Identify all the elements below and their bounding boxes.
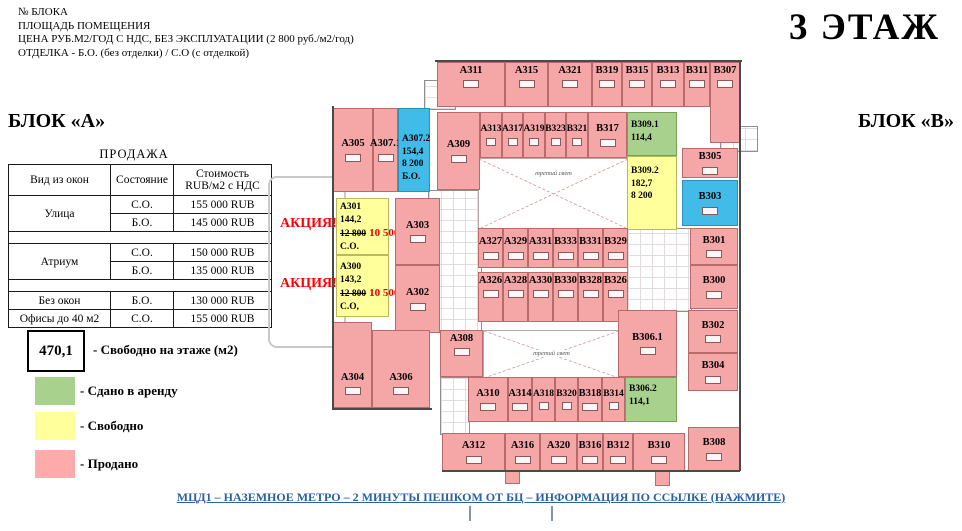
room-label: А312: [462, 440, 485, 452]
atrium-label: третий свет: [479, 170, 628, 177]
room-label: В305: [699, 151, 722, 163]
room-label: В317: [596, 123, 619, 135]
room-А330: А330: [528, 272, 553, 322]
room-info-line: 12 80010 500: [340, 226, 399, 241]
room-number-tag: [533, 290, 549, 298]
room-info-line: Б.О.: [402, 171, 420, 184]
room-А308: А308: [440, 330, 483, 377]
room-А309: А309: [437, 112, 480, 190]
room-info-line: А307.2: [402, 133, 430, 146]
room-label: А330: [529, 275, 552, 287]
service-core: [440, 377, 470, 435]
room-В321: В321: [566, 112, 588, 158]
room-info-line: 154,4: [402, 146, 423, 159]
room-label: А310: [476, 388, 499, 400]
room-info-line: 8 200: [631, 190, 652, 203]
plan-outer-wall: [442, 470, 740, 472]
room-label: В329: [604, 236, 627, 248]
room-info-line: В306.2: [629, 383, 657, 396]
room-number-tag: [583, 252, 599, 260]
room-label: А329: [504, 236, 527, 248]
room-label: В310: [648, 440, 671, 452]
room-label: В301: [703, 235, 726, 247]
room-number-tag: [483, 290, 499, 298]
room-number-tag: [582, 456, 598, 464]
room-label: В326: [604, 275, 627, 287]
room-В330: В330: [553, 272, 578, 322]
room-label: В307: [714, 65, 737, 77]
room-В316: В316: [577, 433, 603, 471]
room-number-tag: [600, 139, 616, 147]
room-info-line: 114,4: [631, 132, 652, 145]
room-label: В306.1: [632, 332, 663, 344]
room-label: В320: [556, 389, 577, 400]
room-number-tag: [533, 252, 549, 260]
room-info-line: 12 80010 500: [340, 286, 399, 301]
room-В313: В313: [652, 62, 684, 107]
room-label: В321: [567, 124, 588, 135]
room-В317: В317: [588, 112, 627, 158]
room-number-tag: [508, 290, 524, 298]
room-label: А313: [480, 124, 501, 135]
room-А302: А302: [395, 265, 440, 333]
stair-stub: [505, 470, 520, 484]
room-В319: В319: [592, 62, 622, 107]
room-number-tag: [483, 252, 499, 260]
room-number-tag: [582, 403, 598, 411]
room-number-tag: [689, 80, 705, 88]
room-info-line: 114,1: [629, 396, 650, 409]
rail-tick-right: [551, 506, 553, 521]
room-label: В302: [702, 320, 725, 332]
room-А320: А320: [540, 433, 577, 471]
room-А300: А300143,212 80010 500С.О,: [336, 255, 389, 317]
room-label: А331: [529, 236, 552, 248]
old-price: 12 800: [340, 229, 366, 239]
room-label: В300: [703, 275, 726, 287]
room-number-tag: [466, 456, 482, 464]
room-А307.1: А307.1: [373, 108, 398, 192]
room-number-tag: [410, 235, 426, 243]
room-number-tag: [609, 402, 619, 410]
room-А303: А303: [395, 198, 440, 265]
room-В301: В301: [690, 228, 738, 265]
room-В303: В303: [682, 180, 738, 226]
plan-outer-wall: [435, 60, 742, 62]
room-label: А318: [533, 389, 554, 400]
room-label: В312: [607, 440, 630, 452]
room-number-tag: [640, 347, 656, 355]
room-number-tag: [706, 291, 722, 299]
room-В329: В329: [603, 228, 628, 268]
room-number-tag: [345, 387, 361, 395]
room-А311: А311: [437, 62, 505, 107]
room-label: А311: [460, 65, 483, 77]
room-label: А305: [341, 138, 364, 150]
room-В300: В300: [690, 265, 738, 309]
promo-label: АКЦИЯ!: [280, 276, 337, 292]
room-label: А320: [547, 440, 570, 452]
room-info-line: 182,7: [631, 178, 652, 191]
room-label: А327: [479, 236, 502, 248]
room-label: А328: [504, 275, 527, 287]
room-info-line: 144,2: [340, 214, 361, 227]
room-number-tag: [551, 138, 561, 146]
room-label: В311: [686, 65, 708, 77]
room-label: А304: [341, 372, 364, 384]
room-В304: В304: [688, 353, 738, 391]
room-А307.2: А307.2154,48 200Б.О.: [398, 108, 430, 192]
room-label: А319: [523, 124, 544, 135]
floor-plan: третий светтретий светА311А315А321В319В3…: [0, 0, 962, 531]
room-number-tag: [519, 80, 535, 88]
room-label: В313: [657, 65, 680, 77]
room-number-tag: [705, 376, 721, 384]
room-number-tag: [608, 252, 624, 260]
room-info-line: В309.1: [631, 119, 659, 132]
room-info-line: А301: [340, 201, 361, 214]
room-number-tag: [451, 155, 467, 163]
room-info-line: С.О.: [340, 241, 359, 254]
room-number-tag: [529, 138, 539, 146]
room-number-tag: [463, 80, 479, 88]
room-В312: В312: [603, 433, 633, 471]
room-А319: А319: [523, 112, 545, 158]
room-В323: В323: [545, 112, 566, 158]
room-number-tag: [508, 138, 518, 146]
room-А316: А316: [505, 433, 540, 471]
room-number-tag: [486, 138, 496, 146]
room-А306: А306: [372, 330, 430, 408]
room-В314: В314: [602, 377, 625, 422]
room-number-tag: [515, 456, 531, 464]
metro-info-link[interactable]: МЦД1 – НАЗЕМНОЕ МЕТРО – 2 МИНУТЫ ПЕШКОМ …: [177, 490, 786, 504]
room-number-tag: [599, 80, 615, 88]
room-number-tag: [562, 402, 572, 410]
room-В307: В307: [710, 62, 740, 143]
room-label: А303: [406, 220, 429, 232]
room-number-tag: [610, 456, 626, 464]
room-В331: В331: [578, 228, 603, 268]
plan-outer-wall: [332, 106, 334, 409]
atrium-void: третий свет: [478, 158, 629, 230]
room-label: А307.1: [370, 138, 401, 150]
room-number-tag: [562, 80, 578, 88]
room-А314: А314: [508, 377, 532, 422]
atrium-label: третий свет: [484, 350, 619, 357]
room-number-tag: [378, 154, 394, 162]
room-number-tag: [706, 453, 722, 461]
room-А331: А331: [528, 228, 553, 268]
room-В333: В333: [553, 228, 578, 268]
page: № БЛОКАПЛОЩАДЬ ПОМЕЩЕНИЯЦЕНА РУБ.М2/ГОД …: [0, 0, 962, 531]
room-А313: А313: [480, 112, 502, 158]
room-number-tag: [706, 250, 722, 258]
room-А318: А318: [532, 377, 555, 422]
room-А321: А321: [548, 62, 592, 107]
room-label: А316: [511, 440, 534, 452]
old-price: 12 800: [340, 289, 366, 299]
room-info-line: 8 200: [402, 158, 423, 171]
service-core: [627, 228, 692, 312]
room-В306.2: В306.2114,1: [625, 377, 677, 422]
plan-outer-wall: [332, 408, 432, 410]
room-number-tag: [410, 303, 426, 311]
room-number-tag: [651, 456, 667, 464]
stair-stub: [655, 470, 670, 486]
room-А301: А301144,212 80010 500С.О.: [336, 198, 389, 255]
room-number-tag: [702, 167, 718, 175]
room-label: В318: [579, 388, 602, 400]
room-number-tag: [608, 290, 624, 298]
atrium-void: третий свет: [483, 330, 620, 379]
room-А310: А310: [468, 377, 508, 422]
room-В315: В315: [622, 62, 652, 107]
room-label: В323: [545, 124, 566, 135]
room-label: В330: [554, 275, 577, 287]
room-label: В331: [579, 236, 602, 248]
room-label: В315: [626, 65, 649, 77]
room-label: А326: [479, 275, 502, 287]
plan-outer-wall: [739, 62, 741, 471]
room-В306.1: В306.1: [618, 310, 677, 377]
promo-label: АКЦИЯ!: [280, 216, 337, 232]
room-label: А314: [508, 388, 531, 400]
room-label: А309: [447, 139, 470, 151]
room-info-line: С.О,: [340, 301, 359, 314]
room-А317: А317: [502, 112, 523, 158]
room-А315: А315: [505, 62, 548, 107]
room-А328: А328: [503, 272, 528, 322]
room-В302: В302: [688, 310, 738, 353]
room-А305: А305: [333, 108, 373, 192]
room-label: В319: [596, 65, 619, 77]
room-label: В304: [702, 360, 725, 372]
room-label: А317: [502, 124, 523, 135]
room-В305: В305: [682, 148, 738, 178]
room-А329: А329: [503, 228, 528, 268]
room-number-tag: [583, 290, 599, 298]
room-number-tag: [558, 290, 574, 298]
room-number-tag: [480, 403, 496, 411]
room-В309.1: В309.1114,4: [627, 112, 677, 156]
room-А312: А312: [442, 433, 505, 471]
room-label: А321: [558, 65, 581, 77]
room-number-tag: [393, 387, 409, 395]
room-В320: В320: [555, 377, 578, 422]
room-label: А302: [406, 287, 429, 299]
footer: МЦД1 – НАЗЕМНОЕ МЕТРО – 2 МИНУТЫ ПЕШКОМ …: [0, 488, 962, 506]
room-number-tag: [572, 138, 582, 146]
room-number-tag: [508, 252, 524, 260]
room-number-tag: [454, 348, 470, 356]
room-number-tag: [629, 80, 645, 88]
room-number-tag: [558, 252, 574, 260]
room-number-tag: [702, 207, 718, 215]
room-label: А315: [515, 65, 538, 77]
room-info-line: 143,2: [340, 274, 361, 287]
room-number-tag: [660, 80, 676, 88]
room-number-tag: [705, 335, 721, 343]
rail-tick-left: [469, 506, 471, 521]
room-В328: В328: [578, 272, 603, 322]
room-label: В303: [699, 191, 722, 203]
room-label: В328: [579, 275, 602, 287]
room-label: В314: [603, 389, 624, 400]
room-label: А308: [450, 333, 473, 345]
room-В310: В310: [633, 433, 685, 471]
room-В309.2: В309.2182,78 200: [627, 156, 677, 230]
room-number-tag: [717, 80, 733, 88]
room-number-tag: [512, 403, 528, 411]
room-А327: А327: [478, 228, 503, 268]
room-label: В316: [579, 440, 602, 452]
room-number-tag: [539, 402, 549, 410]
room-number-tag: [345, 154, 361, 162]
room-info-line: А300: [340, 261, 361, 274]
room-В308: В308: [688, 427, 740, 471]
room-number-tag: [551, 456, 567, 464]
room-В318: В318: [578, 377, 602, 422]
room-label: В308: [703, 437, 726, 449]
room-В311: В311: [684, 62, 710, 107]
room-label: А306: [389, 372, 412, 384]
room-А326: А326: [478, 272, 503, 322]
room-А304: А304: [333, 322, 372, 408]
room-info-line: В309.2: [631, 165, 659, 178]
room-label: В333: [554, 236, 577, 248]
